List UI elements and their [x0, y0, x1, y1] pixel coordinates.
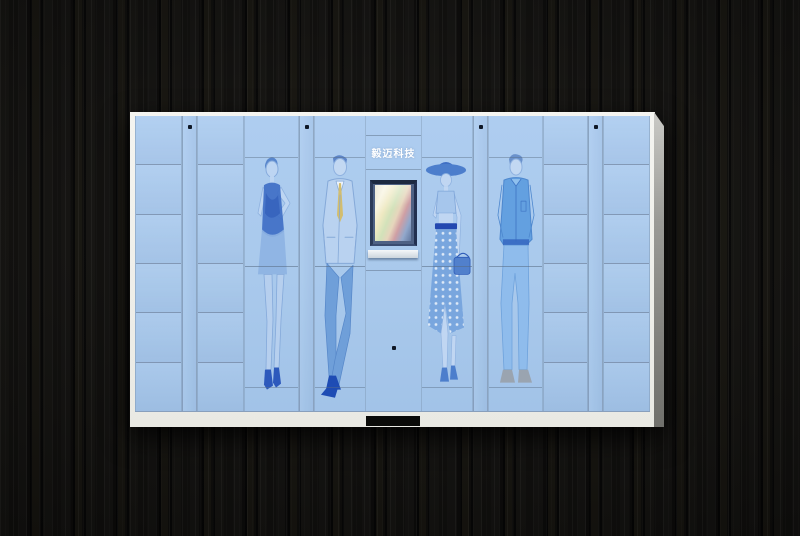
locker-door	[136, 363, 181, 411]
door-divider-line	[489, 157, 542, 158]
door-divider-line	[315, 387, 365, 388]
figure-man-casual-illustration	[488, 153, 543, 404]
lock-indicator-dot	[305, 125, 309, 129]
door-divider-line	[315, 266, 365, 267]
locker-door	[544, 215, 587, 264]
locker-cabinet: 毅迈科技	[130, 112, 664, 427]
door-divider-line	[422, 387, 472, 388]
locker-door	[136, 215, 181, 264]
photo-background-wood-wall: 毅迈科技	[0, 0, 800, 536]
touchscreen-display	[375, 185, 411, 241]
brand-logo-text: 毅迈科技	[372, 145, 416, 160]
keyhole-dot	[392, 346, 396, 350]
cabinet-face: 毅迈科技	[135, 116, 650, 412]
locker-door	[136, 165, 181, 214]
locker-door	[544, 264, 587, 313]
brand-logo-panel: 毅迈科技	[366, 136, 421, 170]
kiosk-lower-panel	[366, 271, 421, 411]
lock-indicator-dot	[479, 125, 483, 129]
kiosk-column: 毅迈科技	[366, 116, 421, 411]
locker-door	[136, 264, 181, 313]
locker-door	[136, 313, 181, 362]
cabinet-base-notch	[366, 416, 420, 426]
door-divider-line	[315, 157, 365, 158]
lock-indicator-dot	[594, 125, 598, 129]
door-divider-line	[245, 266, 298, 267]
locker-door	[198, 363, 243, 411]
cabinet-front-frame: 毅迈科技	[130, 112, 655, 427]
locker-door	[604, 313, 649, 362]
locker-door	[198, 215, 243, 264]
figure-column-woman-dress	[244, 116, 299, 411]
locker-door	[544, 116, 587, 165]
door-divider-line	[422, 157, 472, 158]
figure-column-woman-hat	[421, 116, 473, 411]
figure-column-man-suit	[314, 116, 366, 411]
locker-column	[135, 116, 182, 411]
door-divider-line	[489, 387, 542, 388]
locker-door	[198, 313, 243, 362]
cabinet-side-panel	[654, 112, 664, 427]
door-divider-line	[422, 266, 472, 267]
kiosk-panel: 毅迈科技	[366, 116, 421, 411]
locker-door	[604, 363, 649, 411]
kiosk-top-panel	[366, 116, 421, 136]
locker-door	[604, 165, 649, 214]
locker-column	[543, 116, 588, 411]
locker-door	[198, 264, 243, 313]
figure-man-suit-illustration	[314, 153, 366, 404]
locker-door	[544, 313, 587, 362]
locker-door	[136, 116, 181, 165]
locker-door	[604, 116, 649, 165]
lock-strip	[588, 116, 603, 411]
locker-door	[604, 264, 649, 313]
door-divider-line	[489, 266, 542, 267]
kiosk-screen-section	[366, 170, 421, 271]
locker-door	[604, 215, 649, 264]
lock-strip	[473, 116, 488, 411]
screen-recess	[370, 180, 417, 246]
figure-woman-dress-illustration	[244, 153, 299, 404]
lock-strip	[182, 116, 197, 411]
pickup-slot-ledge	[368, 250, 418, 258]
door-divider-line	[245, 157, 298, 158]
locker-door	[544, 165, 587, 214]
locker-column	[603, 116, 650, 411]
figure-woman-hat-illustration	[421, 153, 473, 404]
locker-door	[544, 363, 587, 411]
lock-indicator-dot	[188, 125, 192, 129]
locker-door	[198, 165, 243, 214]
locker-column	[197, 116, 244, 411]
door-divider-line	[245, 387, 298, 388]
locker-door	[198, 116, 243, 165]
figure-column-man-casual	[488, 116, 543, 411]
